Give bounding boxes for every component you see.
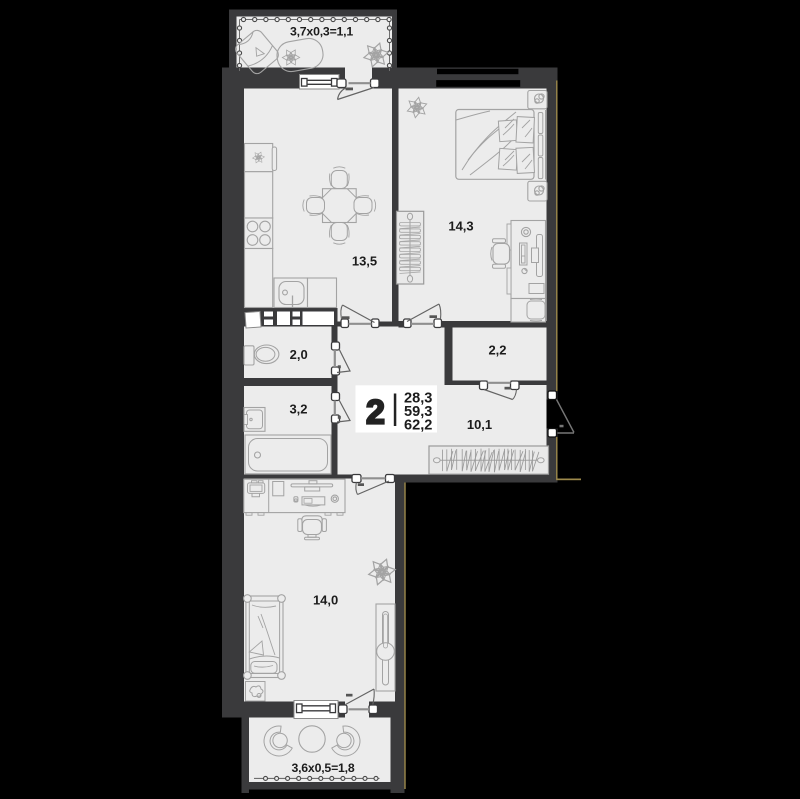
svg-text:3,2: 3,2	[289, 401, 307, 416]
svg-text:14,3: 14,3	[448, 219, 473, 234]
svg-text:3,6x0,5=1,8: 3,6x0,5=1,8	[291, 761, 354, 775]
svg-text:3,7x0,3=1,1: 3,7x0,3=1,1	[290, 24, 353, 38]
svg-text:2: 2	[366, 394, 385, 432]
svg-text:2,2: 2,2	[488, 342, 506, 357]
svg-text:13,5: 13,5	[352, 254, 377, 269]
svg-text:2,0: 2,0	[290, 347, 308, 362]
svg-text:10,1: 10,1	[467, 417, 492, 432]
svg-text:14,0: 14,0	[313, 593, 338, 608]
svg-text:62,2: 62,2	[404, 418, 432, 434]
